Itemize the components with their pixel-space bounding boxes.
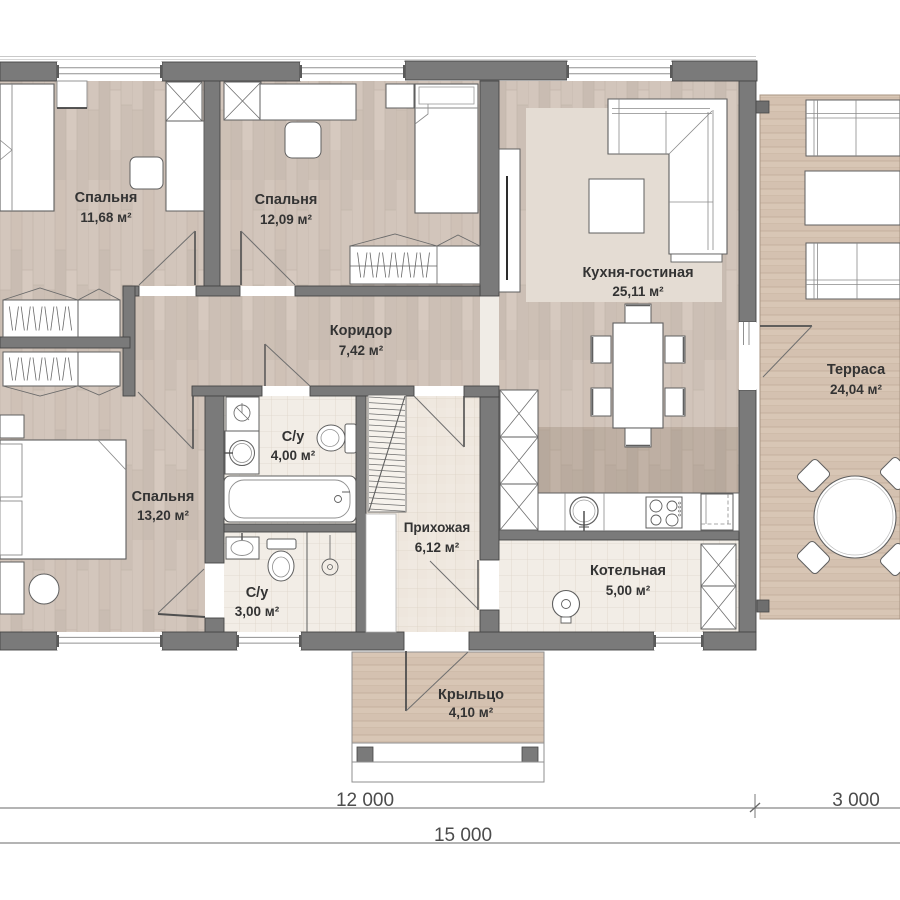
svg-text:12 000: 12 000 [336,790,394,811]
svg-text:Терраса: Терраса [827,362,886,378]
svg-text:Спальня: Спальня [255,192,318,208]
svg-text:С/у: С/у [246,585,269,601]
svg-text:Спальня: Спальня [75,190,138,206]
svg-text:4,00 м²: 4,00 м² [271,448,316,463]
svg-text:15 000: 15 000 [434,825,492,846]
svg-text:7,42 м²: 7,42 м² [339,343,384,358]
svg-text:Спальня: Спальня [132,489,195,505]
svg-text:Кухня-гостиная: Кухня-гостиная [582,265,693,281]
svg-text:Прихожая: Прихожая [404,520,471,535]
svg-text:Котельная: Котельная [590,563,666,579]
svg-text:С/у: С/у [282,429,305,445]
svg-text:12,09 м²: 12,09 м² [260,212,313,227]
svg-text:Крыльцо: Крыльцо [438,687,504,703]
svg-text:24,04 м²: 24,04 м² [830,382,883,397]
svg-text:Коридор: Коридор [330,323,393,339]
svg-text:13,20 м²: 13,20 м² [137,508,190,523]
svg-text:25,11 м²: 25,11 м² [612,284,664,299]
svg-text:4,10 м²: 4,10 м² [449,705,494,720]
svg-text:6,12 м²: 6,12 м² [415,540,460,555]
svg-text:3,00 м²: 3,00 м² [235,604,280,619]
svg-text:3 000: 3 000 [832,790,880,811]
svg-text:11,68 м²: 11,68 м² [80,210,132,225]
svg-text:5,00 м²: 5,00 м² [606,583,651,598]
